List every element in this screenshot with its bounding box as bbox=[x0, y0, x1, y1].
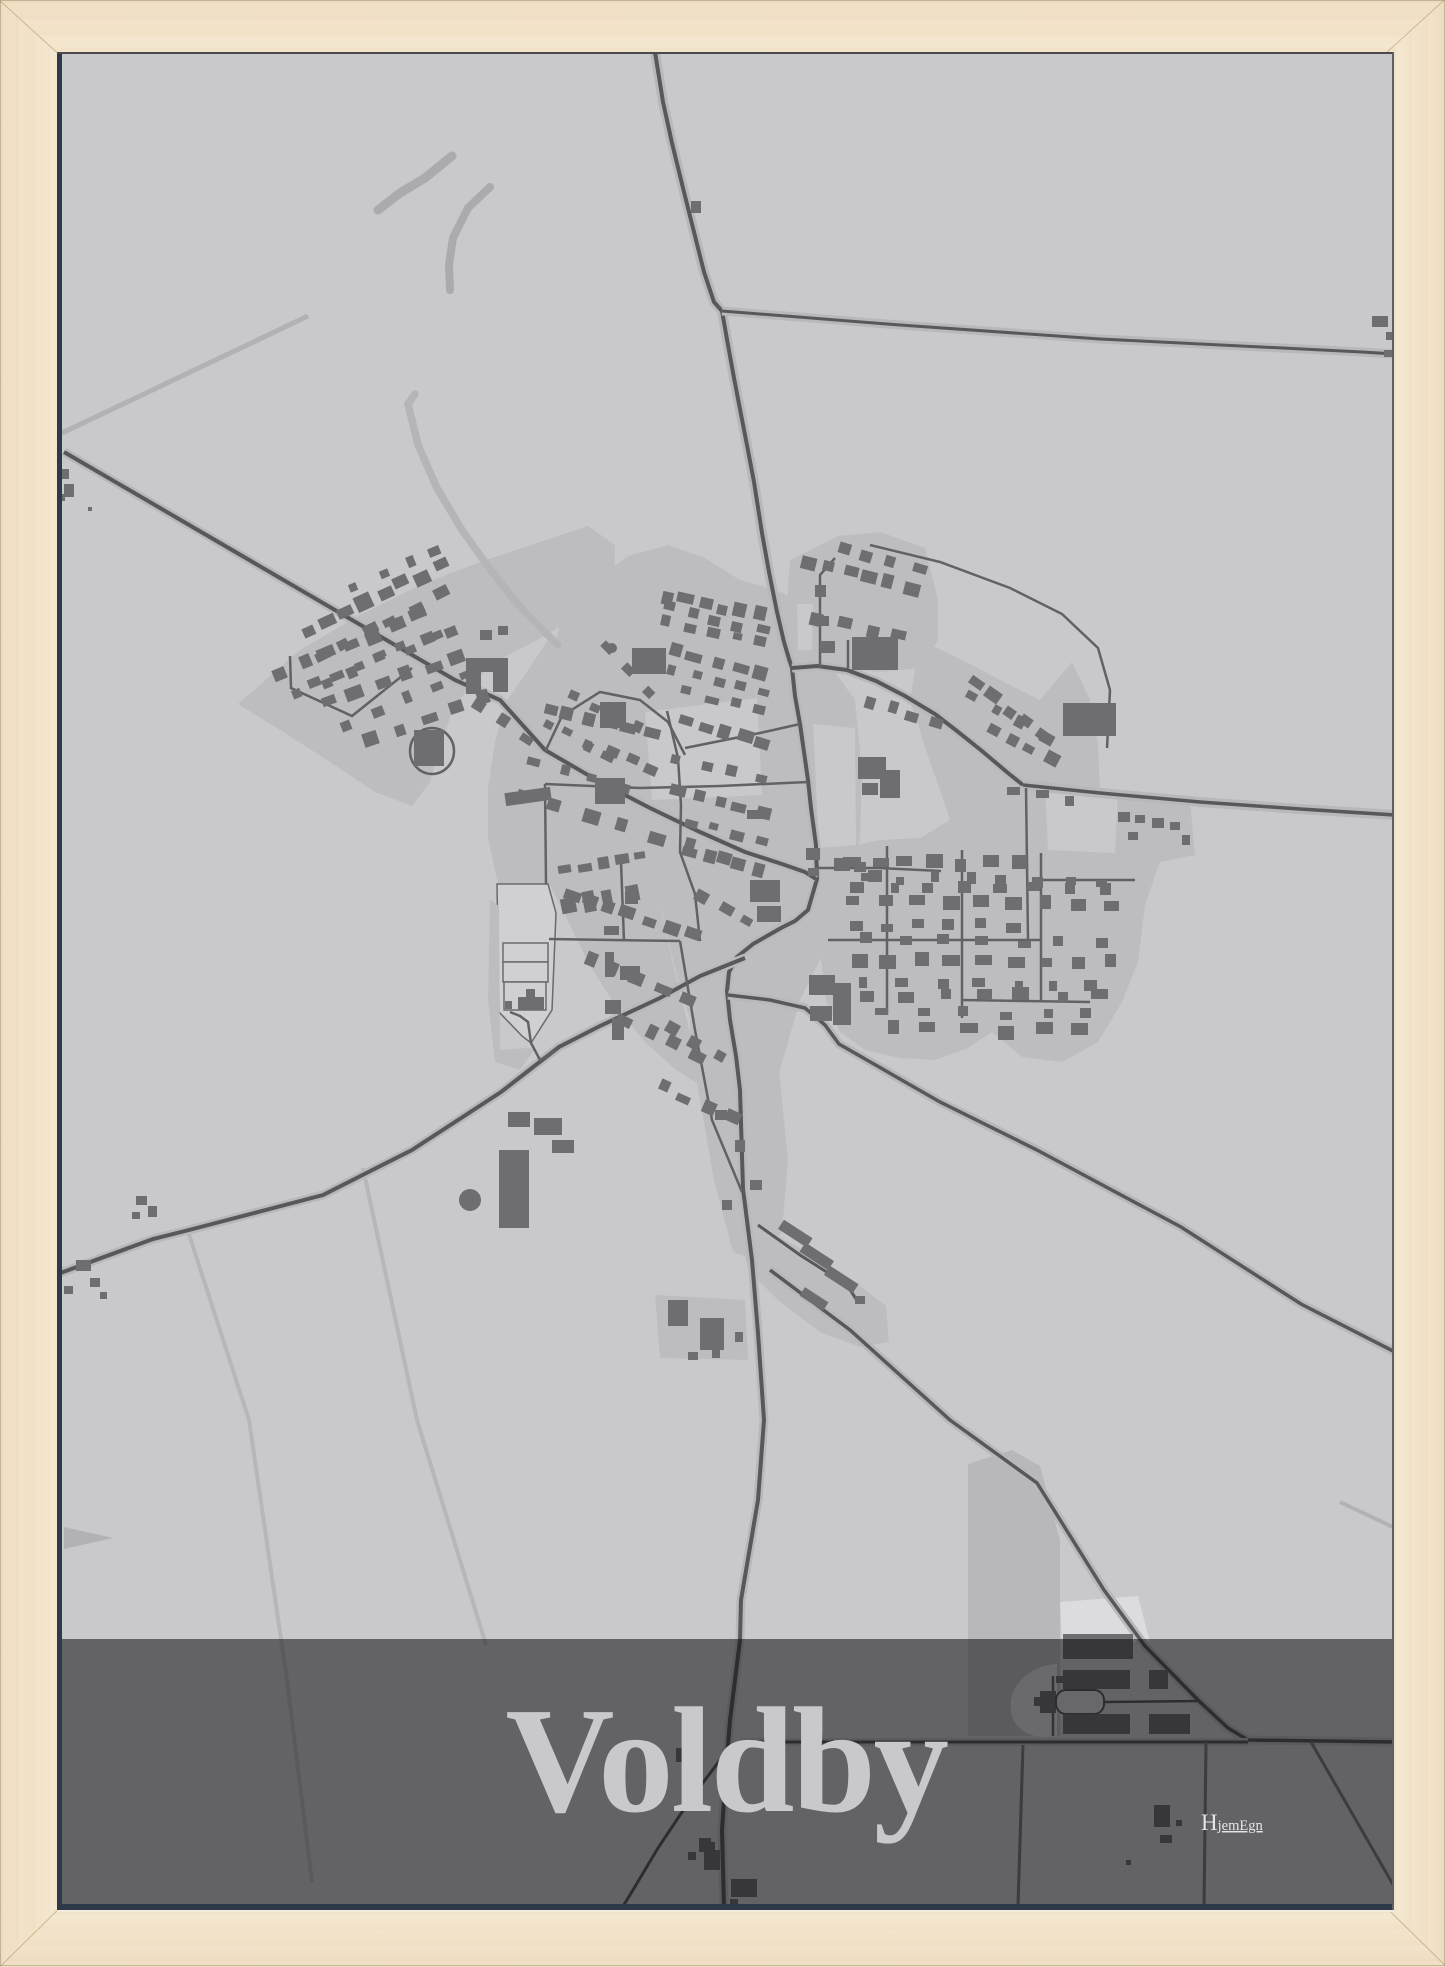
svg-text:Voldby: Voldby bbox=[505, 1676, 948, 1844]
